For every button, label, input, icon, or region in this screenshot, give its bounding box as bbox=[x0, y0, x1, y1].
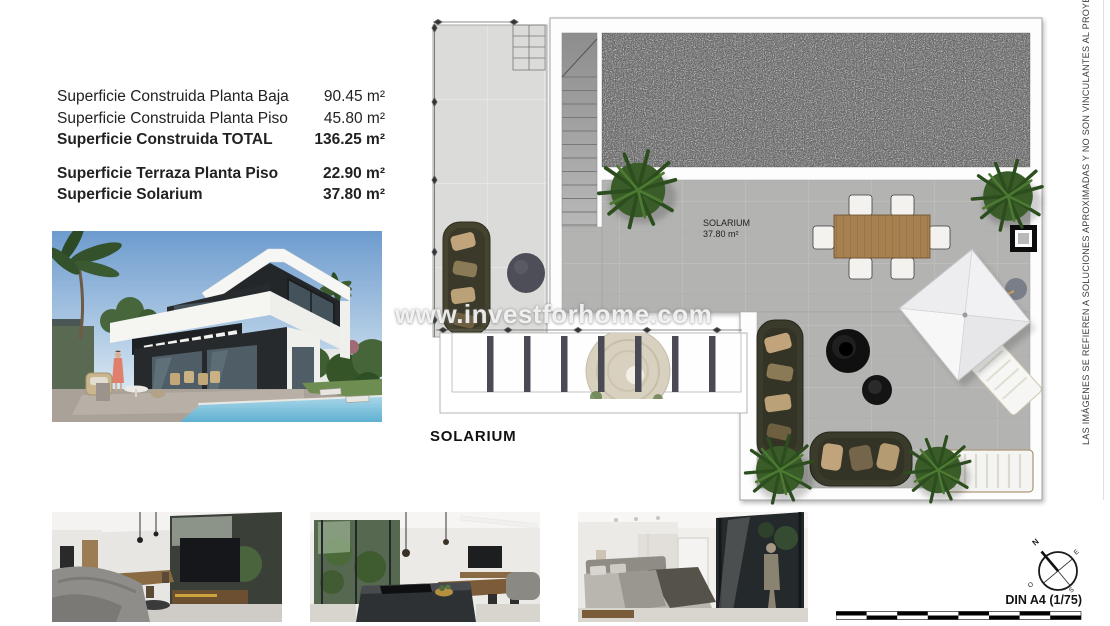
area-table: Superficie Construida Planta Baja 90.45 … bbox=[57, 86, 385, 206]
area-row: Superficie Terraza Planta Piso 22.90 m² bbox=[57, 163, 385, 185]
area-value: 45.80 m² bbox=[324, 108, 385, 130]
outdoor-sofa bbox=[443, 222, 490, 334]
villa-render-image bbox=[52, 231, 382, 422]
plan-room-area: 37.80 m² bbox=[703, 229, 739, 239]
brochure-page: Superficie Construida Planta Baja 90.45 … bbox=[0, 0, 1110, 626]
compass-north: N bbox=[1031, 537, 1041, 548]
gravel-roof bbox=[602, 33, 1030, 167]
area-label: Superficie Solarium bbox=[57, 184, 203, 206]
upper-terrace bbox=[433, 25, 547, 337]
black-pouf bbox=[826, 329, 870, 373]
area-row: Superficie Construida Planta Baja 90.45 … bbox=[57, 86, 385, 108]
solarium-block: SOLARIUM 37.80 m² bbox=[550, 18, 1044, 503]
outdoor-sofa bbox=[757, 320, 803, 460]
area-value: 37.80 m² bbox=[323, 184, 385, 206]
dining-chair bbox=[849, 258, 872, 279]
dining-chair bbox=[849, 195, 872, 216]
dining-chair bbox=[929, 226, 950, 249]
area-value: 22.90 m² bbox=[323, 163, 385, 185]
area-label: Superficie Construida Planta Baja bbox=[57, 86, 289, 108]
interior-photo-bedroom bbox=[578, 512, 808, 622]
disclaimer-vertical: LAS IMÁGENES SE REFIEREN A SOLUCIONES AP… bbox=[1081, 25, 1096, 445]
compass-west: O bbox=[1027, 581, 1035, 590]
interior-photo-living-image bbox=[52, 512, 282, 622]
area-label: Superficie Terraza Planta Piso bbox=[57, 163, 278, 185]
compass-icon: N E O S bbox=[1018, 528, 1098, 598]
area-label: Superficie Construida Planta Piso bbox=[57, 108, 288, 130]
compass-east: E bbox=[1073, 548, 1081, 557]
area-value: 136.25 m² bbox=[314, 129, 385, 151]
scale-bar bbox=[836, 611, 1082, 620]
round-side-table bbox=[507, 253, 545, 293]
area-value: 90.45 m² bbox=[324, 86, 385, 108]
floor-plan: SOLARIUM 37.80 m² bbox=[430, 15, 1065, 520]
area-label: Superficie Construida TOTAL bbox=[57, 129, 273, 151]
dining-chair bbox=[891, 258, 914, 279]
area-row: Superficie Solarium 37.80 m² bbox=[57, 184, 385, 206]
area-row: Superficie Construida Planta Piso 45.80 … bbox=[57, 108, 385, 130]
solarium-title: SOLARIUM bbox=[430, 428, 516, 445]
interior-photo-bedroom-image bbox=[578, 512, 808, 622]
pergola bbox=[440, 329, 747, 413]
floor-plan-drawing: SOLARIUM 37.80 m² bbox=[430, 15, 1065, 520]
interior-photo-kitchen-image bbox=[310, 512, 540, 622]
outdoor-sofa bbox=[810, 432, 912, 486]
dining-table bbox=[834, 215, 930, 258]
page-edge-line bbox=[1103, 0, 1104, 500]
plan-room-label: SOLARIUM bbox=[703, 218, 750, 228]
area-row-total: Superficie Construida TOTAL 136.25 m² bbox=[57, 129, 385, 151]
skylight bbox=[1010, 225, 1037, 252]
dining-chair bbox=[891, 195, 914, 216]
staircase bbox=[562, 33, 597, 227]
format-label: DIN A4 (1/75) bbox=[940, 593, 1082, 607]
dining-chair bbox=[813, 226, 834, 249]
villa-render bbox=[52, 231, 382, 422]
black-pouf-small bbox=[862, 375, 892, 405]
interior-photo-living bbox=[52, 512, 282, 622]
interior-photo-kitchen bbox=[310, 512, 540, 622]
